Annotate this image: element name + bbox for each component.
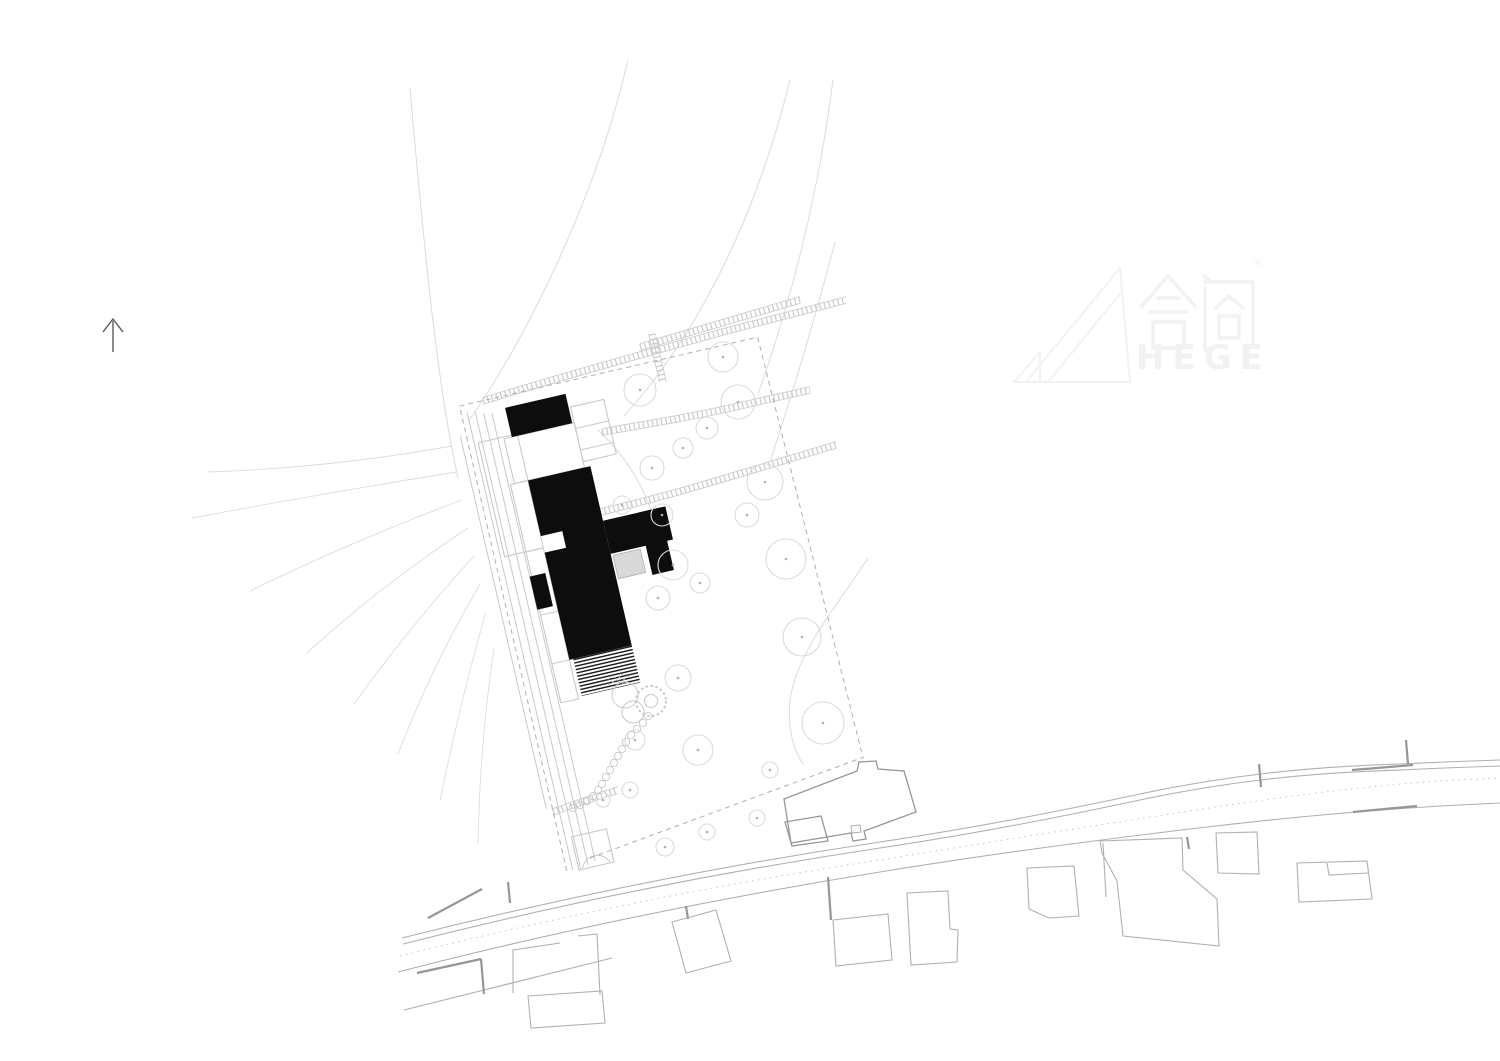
stepping-stone: [639, 719, 646, 726]
terrace-divider: [576, 421, 609, 429]
neighbor-building-outline: [785, 816, 828, 846]
watermark-triangle-inner-line: [1048, 294, 1120, 382]
site-plan-drawing: [0, 0, 1500, 1061]
neighbor-building-outline: [833, 914, 892, 966]
neighbor-building-outline: [1216, 832, 1259, 874]
retaining-wall: [1259, 764, 1261, 787]
retaining-wall: [686, 906, 688, 919]
tree-center-dot: [785, 558, 788, 561]
site-boundary-dashed: [460, 337, 758, 406]
terrace-divider: [580, 442, 613, 450]
tree-center-dot: [602, 799, 605, 802]
tree-center-dot: [682, 447, 685, 450]
rotated-site-group: [454, 335, 874, 875]
stepping-stone: [614, 752, 621, 759]
tree-center-dot: [629, 789, 632, 792]
retaining-wall: [508, 882, 510, 903]
north-arrow-icon: [103, 319, 123, 352]
road-edge-line: [404, 958, 612, 1010]
slope-line: [398, 584, 480, 754]
stepping-stone: [610, 759, 617, 766]
stepped-path-rungs: [600, 445, 836, 512]
slope-line: [250, 500, 462, 591]
neighbor-building-outline: [528, 991, 605, 1028]
stepping-stone: [618, 745, 625, 752]
tree-center-dot: [672, 564, 675, 567]
neighbor-building-outline: [784, 761, 916, 843]
tree-center-dot: [661, 514, 664, 517]
slope-line: [192, 472, 456, 518]
retaining-wall: [828, 877, 831, 920]
watermark-small-triangle-icon: [1014, 352, 1040, 382]
cjk-stroke: [1216, 296, 1229, 308]
terrace-divider: [552, 660, 570, 664]
neighbor-building-outline: [672, 910, 731, 973]
spiral-stair-ring: [636, 686, 666, 716]
retaining-wall: [1406, 740, 1408, 764]
contour-line: [758, 80, 833, 394]
tree-center-dot: [664, 846, 667, 849]
retaining-wall: [481, 959, 484, 994]
stepped-path-edge: [600, 442, 836, 509]
spiral-stair-core: [645, 695, 658, 708]
landscape-feature-dot: [612, 681, 614, 683]
road-edge-line: [402, 760, 1500, 938]
tree-center-dot: [706, 427, 709, 430]
slope-line: [478, 648, 494, 843]
retaining-wall: [1187, 837, 1189, 849]
contour-line: [789, 558, 868, 764]
building-footprint-block: [505, 394, 572, 437]
slope-line: [440, 612, 486, 801]
tree-center-dot: [722, 356, 725, 359]
neighbor-building-outline: [1100, 838, 1219, 946]
landscape-feature-dot: [623, 678, 625, 680]
tree-center-dot: [621, 504, 624, 507]
site-boundary-dashed: [758, 335, 863, 756]
neighbor-building-outline: [1027, 866, 1079, 918]
neighbor-building-outline: [578, 934, 600, 995]
tree-center-dot: [764, 481, 767, 484]
neighbor-building-outline: [1297, 861, 1372, 902]
building-footprint-block: [530, 573, 553, 610]
tree-center-dot: [634, 739, 637, 742]
tree-center-dot: [822, 722, 825, 725]
stepped-path-rungs: [483, 300, 846, 401]
stepped-path-edge: [483, 303, 846, 404]
tree-center-dot: [639, 389, 642, 392]
cjk-stroke: [1219, 316, 1239, 338]
watermark-triangle-icon: [1026, 268, 1130, 382]
stepping-stone: [627, 731, 634, 738]
watermark-hege-text: HEGE: [1136, 341, 1271, 375]
stepped-path-edge: [640, 303, 800, 350]
contour-lines-layer: [410, 60, 868, 764]
tree-center-dot: [756, 817, 759, 820]
stepping-stone: [633, 725, 640, 732]
retaining-walls-layer: [417, 740, 1417, 994]
tree-center-dot: [699, 582, 702, 585]
neighbor-buildings-layer: [513, 761, 1372, 1028]
site-plan-canvas: HEGE ® 合阁: [0, 0, 1500, 1061]
tree-center-dot: [677, 677, 680, 680]
terrace-outline: [571, 399, 617, 461]
watermark-registered-mark: ®: [1252, 257, 1264, 269]
neighbor-building-outline: [1103, 843, 1106, 897]
tree-center-dot: [737, 401, 740, 404]
stepping-stone: [606, 766, 613, 773]
stepping-stone: [602, 773, 609, 780]
contour-line: [468, 60, 628, 422]
retaining-wall: [417, 959, 481, 973]
neighbor-building-outline: [1327, 863, 1368, 875]
stepped-path-rungs: [553, 790, 618, 812]
slope-fan-lines-layer: [192, 446, 494, 843]
cjk-stroke: [1168, 276, 1195, 306]
spiral-stair-and-stepping-stones-layer: [569, 674, 864, 858]
tree-center-dot: [769, 769, 772, 772]
stepped-path-rungs: [602, 390, 810, 432]
neighbor-building-outline: [907, 891, 958, 965]
retaining-wall: [1353, 806, 1417, 812]
road-edge-line: [403, 766, 1500, 944]
slope-line: [354, 556, 474, 704]
neighbor-building-outline: [513, 943, 560, 993]
tree-center-dot: [657, 597, 660, 600]
stepping-stone: [594, 786, 601, 793]
building-gray-annex: [613, 549, 646, 579]
retaining-wall: [428, 889, 482, 918]
site-and-building-layer: [454, 335, 874, 875]
cjk-stroke: [1229, 296, 1243, 308]
site-boundary-dashed-bottom: [590, 757, 864, 858]
tree-center-dot: [651, 467, 654, 470]
road-layer: [398, 760, 1500, 1010]
neighbor-building-outline: [851, 825, 861, 833]
tree-center-dot: [697, 749, 700, 752]
tree-center-dot: [706, 831, 709, 834]
stepped-path-edge: [602, 387, 810, 429]
trees-layer: [596, 342, 844, 856]
slope-line: [208, 446, 452, 472]
tree-center-dot: [801, 636, 804, 639]
cjk-stroke: [1142, 276, 1168, 306]
terrace-divider: [526, 548, 544, 552]
tree-center-dot: [746, 514, 749, 517]
contour-line: [770, 242, 835, 462]
terrace-divider: [541, 611, 559, 615]
contour-line: [410, 88, 458, 478]
